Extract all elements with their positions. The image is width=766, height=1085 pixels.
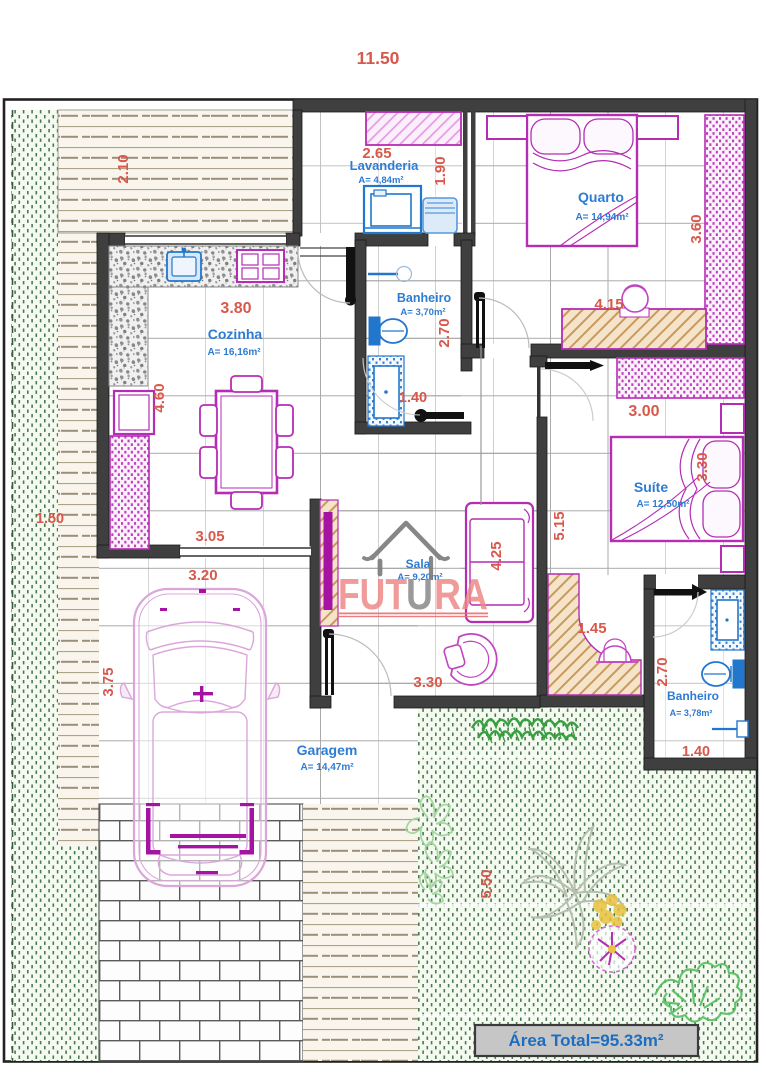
svg-text:RA: RA (434, 570, 488, 619)
svg-text:4.25: 4.25 (488, 541, 505, 570)
svg-text:Suíte: Suíte (634, 479, 668, 495)
svg-text:3.30: 3.30 (413, 674, 442, 691)
svg-text:3.60: 3.60 (688, 214, 705, 243)
svg-text:3.05: 3.05 (195, 528, 224, 545)
svg-text:A= 3,78m²: A= 3,78m² (670, 708, 713, 718)
svg-text:A= 3,70m²: A= 3,70m² (400, 307, 445, 318)
svg-text:U: U (406, 570, 433, 619)
svg-text:FUT: FUT (338, 570, 407, 619)
svg-text:1.50: 1.50 (36, 511, 64, 527)
svg-text:3.00: 3.00 (628, 403, 659, 420)
svg-text:Banheiro: Banheiro (667, 689, 719, 703)
svg-text:3.80: 3.80 (220, 300, 251, 317)
svg-text:Cozinha: Cozinha (208, 326, 263, 342)
svg-text:2.10: 2.10 (115, 154, 132, 183)
svg-text:5.15: 5.15 (551, 511, 568, 540)
svg-text:Lavanderia: Lavanderia (350, 158, 419, 173)
svg-text:5.50: 5.50 (478, 869, 495, 898)
svg-text:Banheiro: Banheiro (397, 291, 452, 305)
svg-text:1.45: 1.45 (577, 620, 606, 637)
svg-text:11.50: 11.50 (357, 48, 400, 68)
svg-text:Quarto: Quarto (578, 189, 624, 205)
svg-text:4.15: 4.15 (594, 296, 623, 313)
svg-text:2.70: 2.70 (654, 657, 671, 686)
svg-text:1.40: 1.40 (682, 744, 710, 760)
svg-text:2.70: 2.70 (436, 318, 453, 347)
svg-text:A= 4,84m²: A= 4,84m² (358, 175, 403, 186)
svg-text:Área Total=95.33m²: Área Total=95.33m² (508, 1031, 663, 1050)
svg-text:3.20: 3.20 (188, 567, 217, 584)
svg-text:A= 16,16m²: A= 16,16m² (207, 347, 261, 358)
svg-text:A= 14,94m²: A= 14,94m² (575, 212, 629, 223)
svg-text:1.90: 1.90 (432, 156, 449, 185)
svg-text:A= 14,47m²: A= 14,47m² (300, 762, 354, 773)
svg-text:4.60: 4.60 (151, 383, 168, 412)
svg-text:Sala: Sala (406, 557, 431, 571)
svg-text:Garagem: Garagem (297, 742, 358, 758)
svg-text:3.75: 3.75 (100, 667, 117, 696)
svg-text:A= 12,50m²: A= 12,50m² (636, 499, 690, 510)
svg-text:3.30: 3.30 (694, 452, 711, 481)
svg-text:1.40: 1.40 (399, 390, 427, 406)
